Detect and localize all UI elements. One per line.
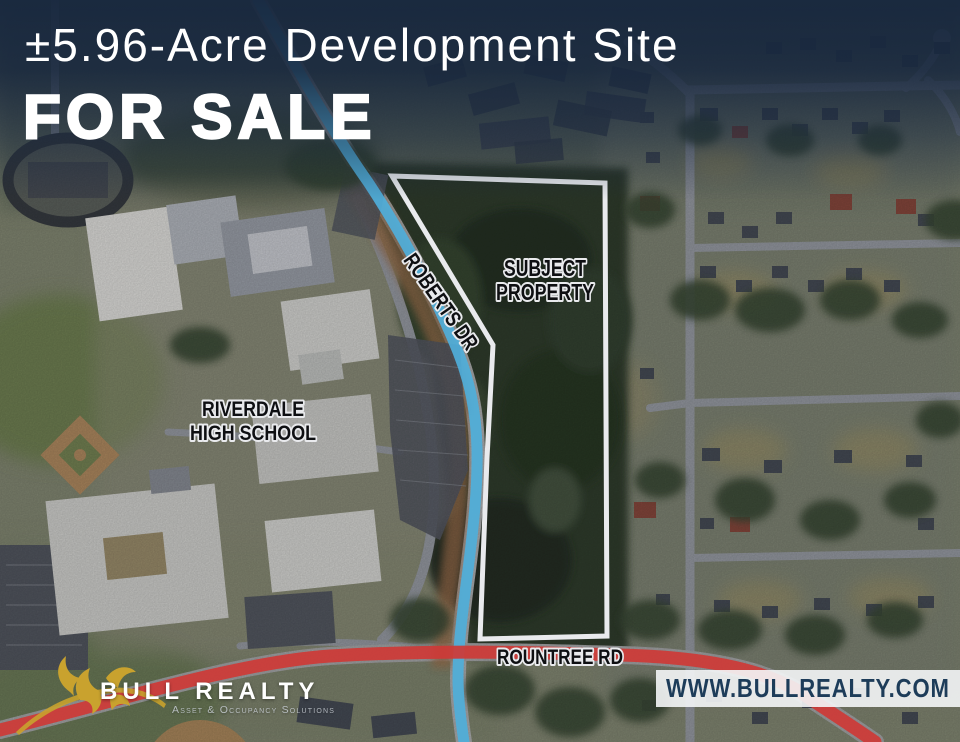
- headline-for-sale: FOR SALE: [23, 82, 376, 153]
- riverdale-label-line2: HIGH SCHOOL: [190, 422, 316, 445]
- riverdale-label-line1: RIVERDALE: [202, 398, 304, 421]
- subject-property-label-line1: SUBJECT: [504, 255, 586, 281]
- website-link[interactable]: WWW.BULLREALTY.COM: [666, 673, 950, 704]
- website-banner: WWW.BULLREALTY.COM: [656, 670, 960, 707]
- headline-acreage: ±5.96-Acre Development Site: [25, 18, 680, 72]
- flyer: SUBJECT PROPERTY ROBERTS DR RIVERDALE HI…: [0, 0, 960, 742]
- brand-tagline: Asset & Occupancy Solutions: [172, 704, 335, 716]
- rountree-rd-label: ROUNTREE RD: [497, 646, 623, 669]
- brand-name: BULL REALTY: [100, 678, 319, 706]
- subject-property-label-line2: PROPERTY: [496, 279, 594, 305]
